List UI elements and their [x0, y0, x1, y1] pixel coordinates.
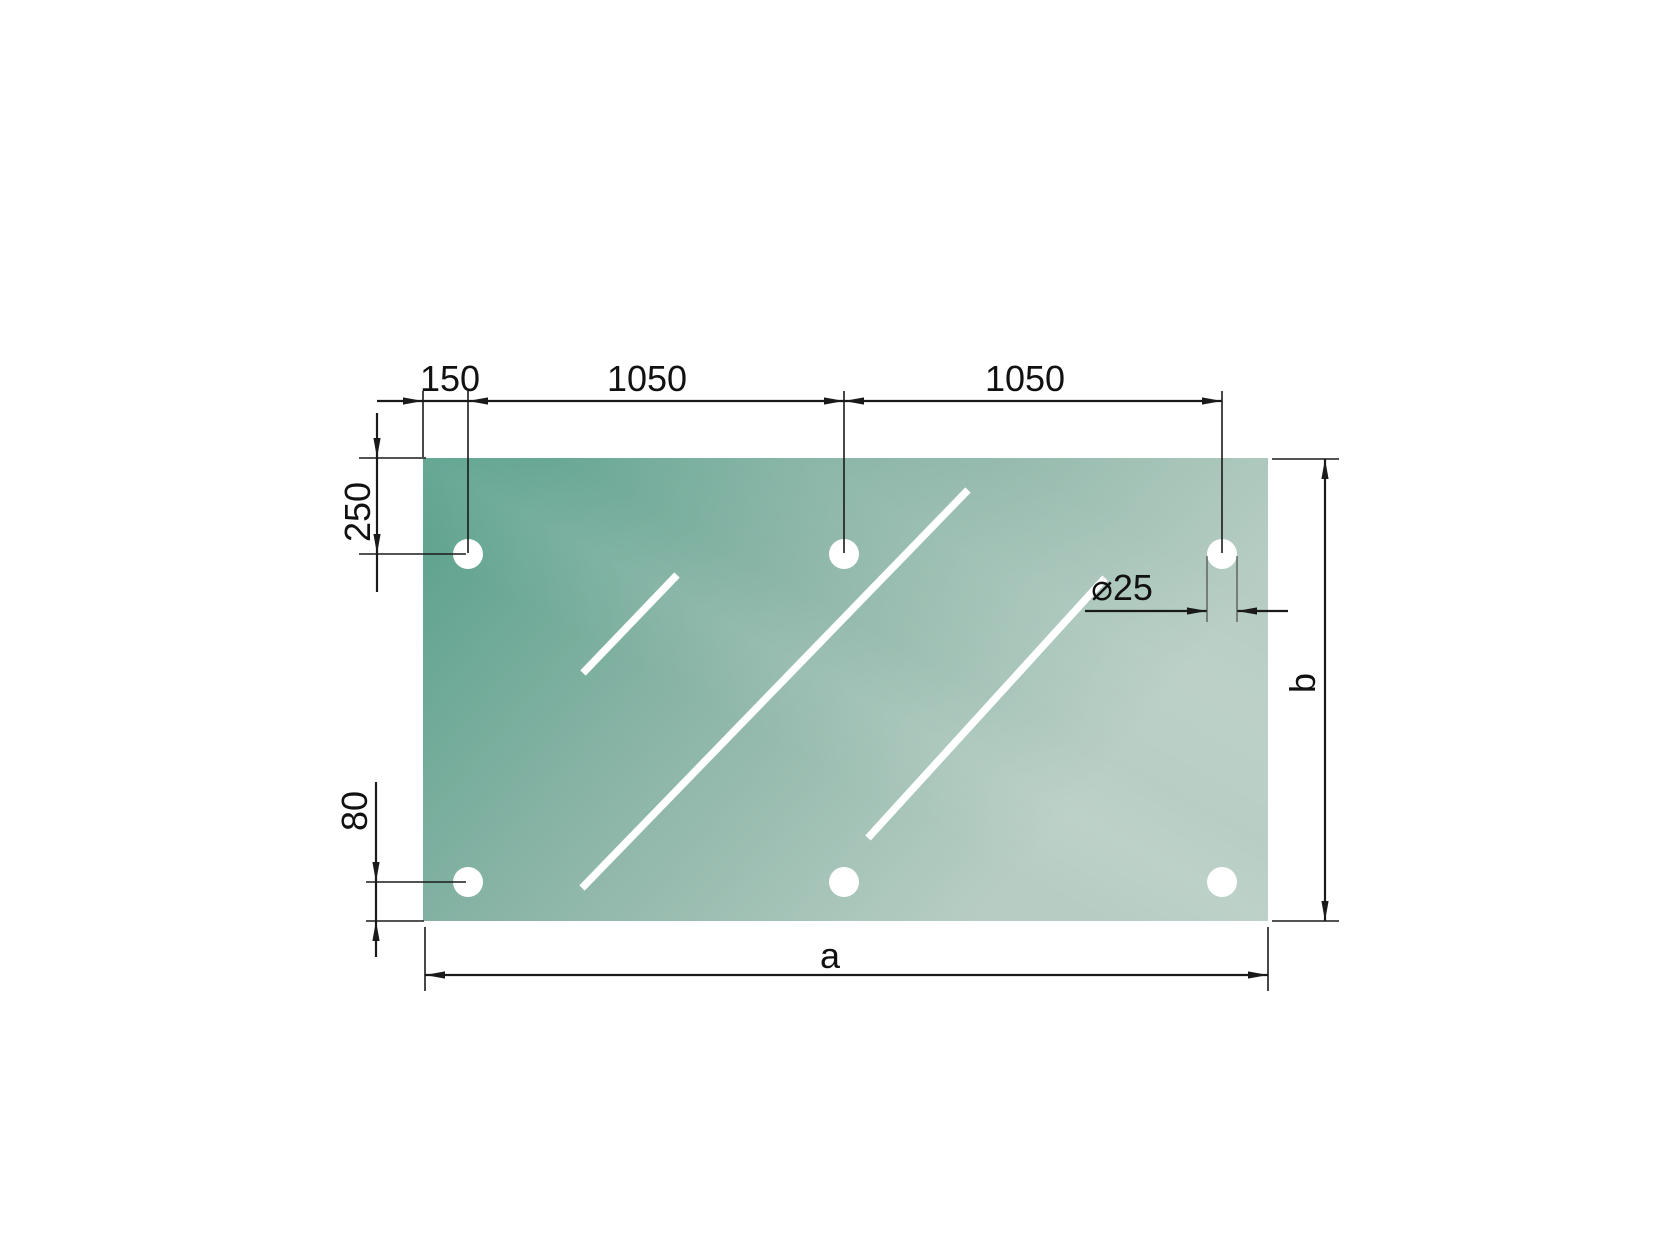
label-width-a: a — [820, 935, 841, 976]
arrowhead — [1321, 901, 1328, 921]
arrowhead — [844, 397, 864, 404]
arrowhead — [372, 921, 379, 941]
glass-panel-dimension-drawing: 150 1050 1050 250 80 ⌀25 a b — [0, 0, 1680, 1260]
technical-drawing-canvas: 150 1050 1050 250 80 ⌀25 a b — [0, 0, 1680, 1260]
glass-sheen-overlay — [423, 458, 1268, 921]
label-250: 250 — [337, 482, 378, 542]
label-1050-right: 1050 — [985, 358, 1065, 399]
hole-bottom-middle — [829, 867, 859, 897]
dimension-width-a — [425, 927, 1268, 991]
label-1050-left: 1050 — [607, 358, 687, 399]
arrowhead — [372, 862, 379, 882]
label-height-b: b — [1282, 673, 1323, 693]
arrowhead — [1248, 971, 1268, 978]
arrowhead — [1202, 397, 1222, 404]
label-hole-diameter: ⌀25 — [1091, 567, 1153, 608]
label-150: 150 — [420, 358, 480, 399]
arrowhead — [824, 397, 844, 404]
arrowhead — [425, 971, 445, 978]
label-80: 80 — [334, 791, 375, 831]
arrowhead — [373, 438, 380, 458]
arrowhead — [1321, 459, 1328, 479]
hole-bottom-right — [1207, 867, 1237, 897]
